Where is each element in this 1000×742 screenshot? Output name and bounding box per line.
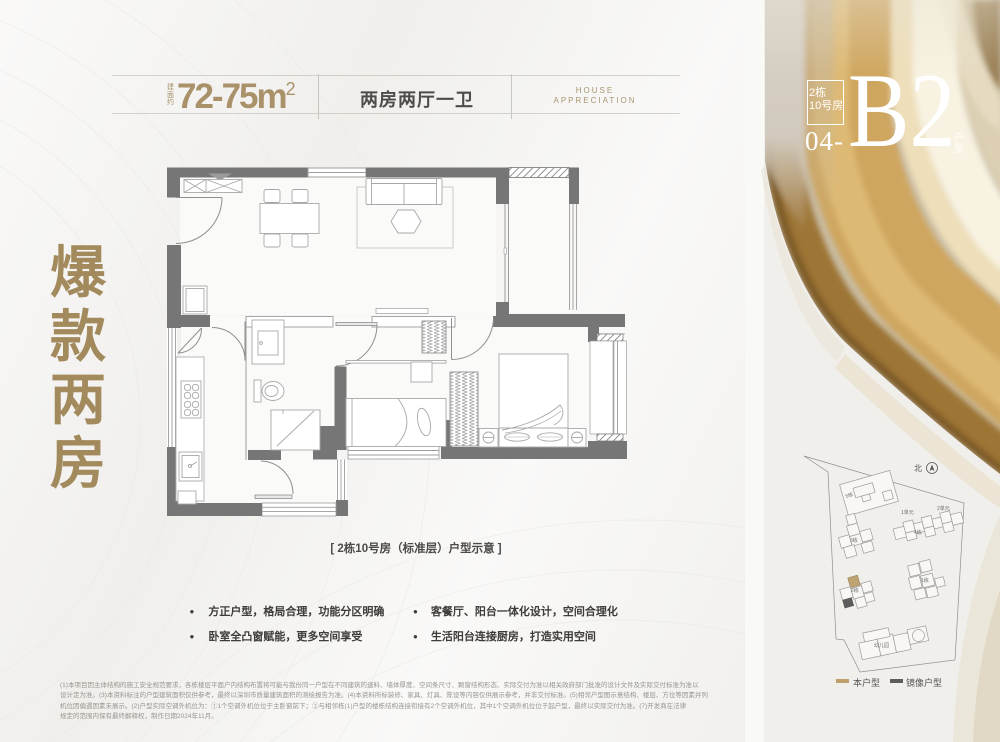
svg-text:1栋: 1栋 <box>921 577 929 584</box>
svg-text:3栋: 3栋 <box>850 537 858 544</box>
svg-text:幼儿园: 幼儿园 <box>874 642 889 649</box>
svg-text:4栋: 4栋 <box>914 529 922 536</box>
svg-text:2单元: 2单元 <box>937 505 950 512</box>
svg-text:北: 北 <box>914 464 922 473</box>
svg-text:2栋: 2栋 <box>851 587 859 594</box>
svg-text:1单元: 1单元 <box>901 509 914 516</box>
